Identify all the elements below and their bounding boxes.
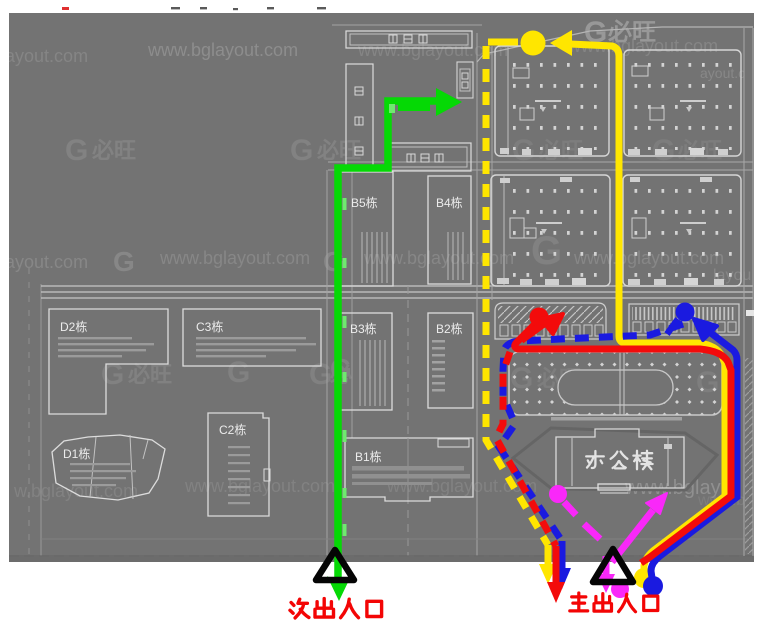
svg-text:C3栋: C3栋 xyxy=(196,319,223,334)
svg-text:C2栋: C2栋 xyxy=(219,422,246,437)
svg-text:必旺: 必旺 xyxy=(92,138,136,163)
svg-text:必旺: 必旺 xyxy=(128,362,172,387)
svg-text:必旺: 必旺 xyxy=(608,19,656,46)
svg-text:G: G xyxy=(113,246,135,277)
svg-text:D1栋: D1栋 xyxy=(63,446,90,461)
svg-text:B1栋: B1栋 xyxy=(355,449,382,464)
svg-text:B4栋: B4栋 xyxy=(436,195,463,210)
svg-text:www.bglayout.com: www.bglayout.com xyxy=(184,476,335,496)
svg-text:www.bglayout.com: www.bglayout.com xyxy=(0,46,88,66)
svg-text:D2栋: D2栋 xyxy=(60,319,87,334)
svg-text:B5栋: B5栋 xyxy=(351,195,378,210)
svg-text:B2栋: B2栋 xyxy=(436,321,463,336)
svg-text:必旺: 必旺 xyxy=(317,138,361,163)
svg-text:www.bglayout.com: www.bglayout.com xyxy=(0,252,88,272)
svg-text:G: G xyxy=(65,134,88,167)
svg-text:G: G xyxy=(290,134,313,167)
svg-text:www.bglayout.com: www.bglayout.com xyxy=(147,40,298,60)
svg-text:G: G xyxy=(101,358,124,391)
svg-text:www.bglayout.com: www.bglayout.com xyxy=(159,248,310,268)
svg-text:G: G xyxy=(227,356,250,389)
svg-text:B3栋: B3栋 xyxy=(350,321,377,336)
